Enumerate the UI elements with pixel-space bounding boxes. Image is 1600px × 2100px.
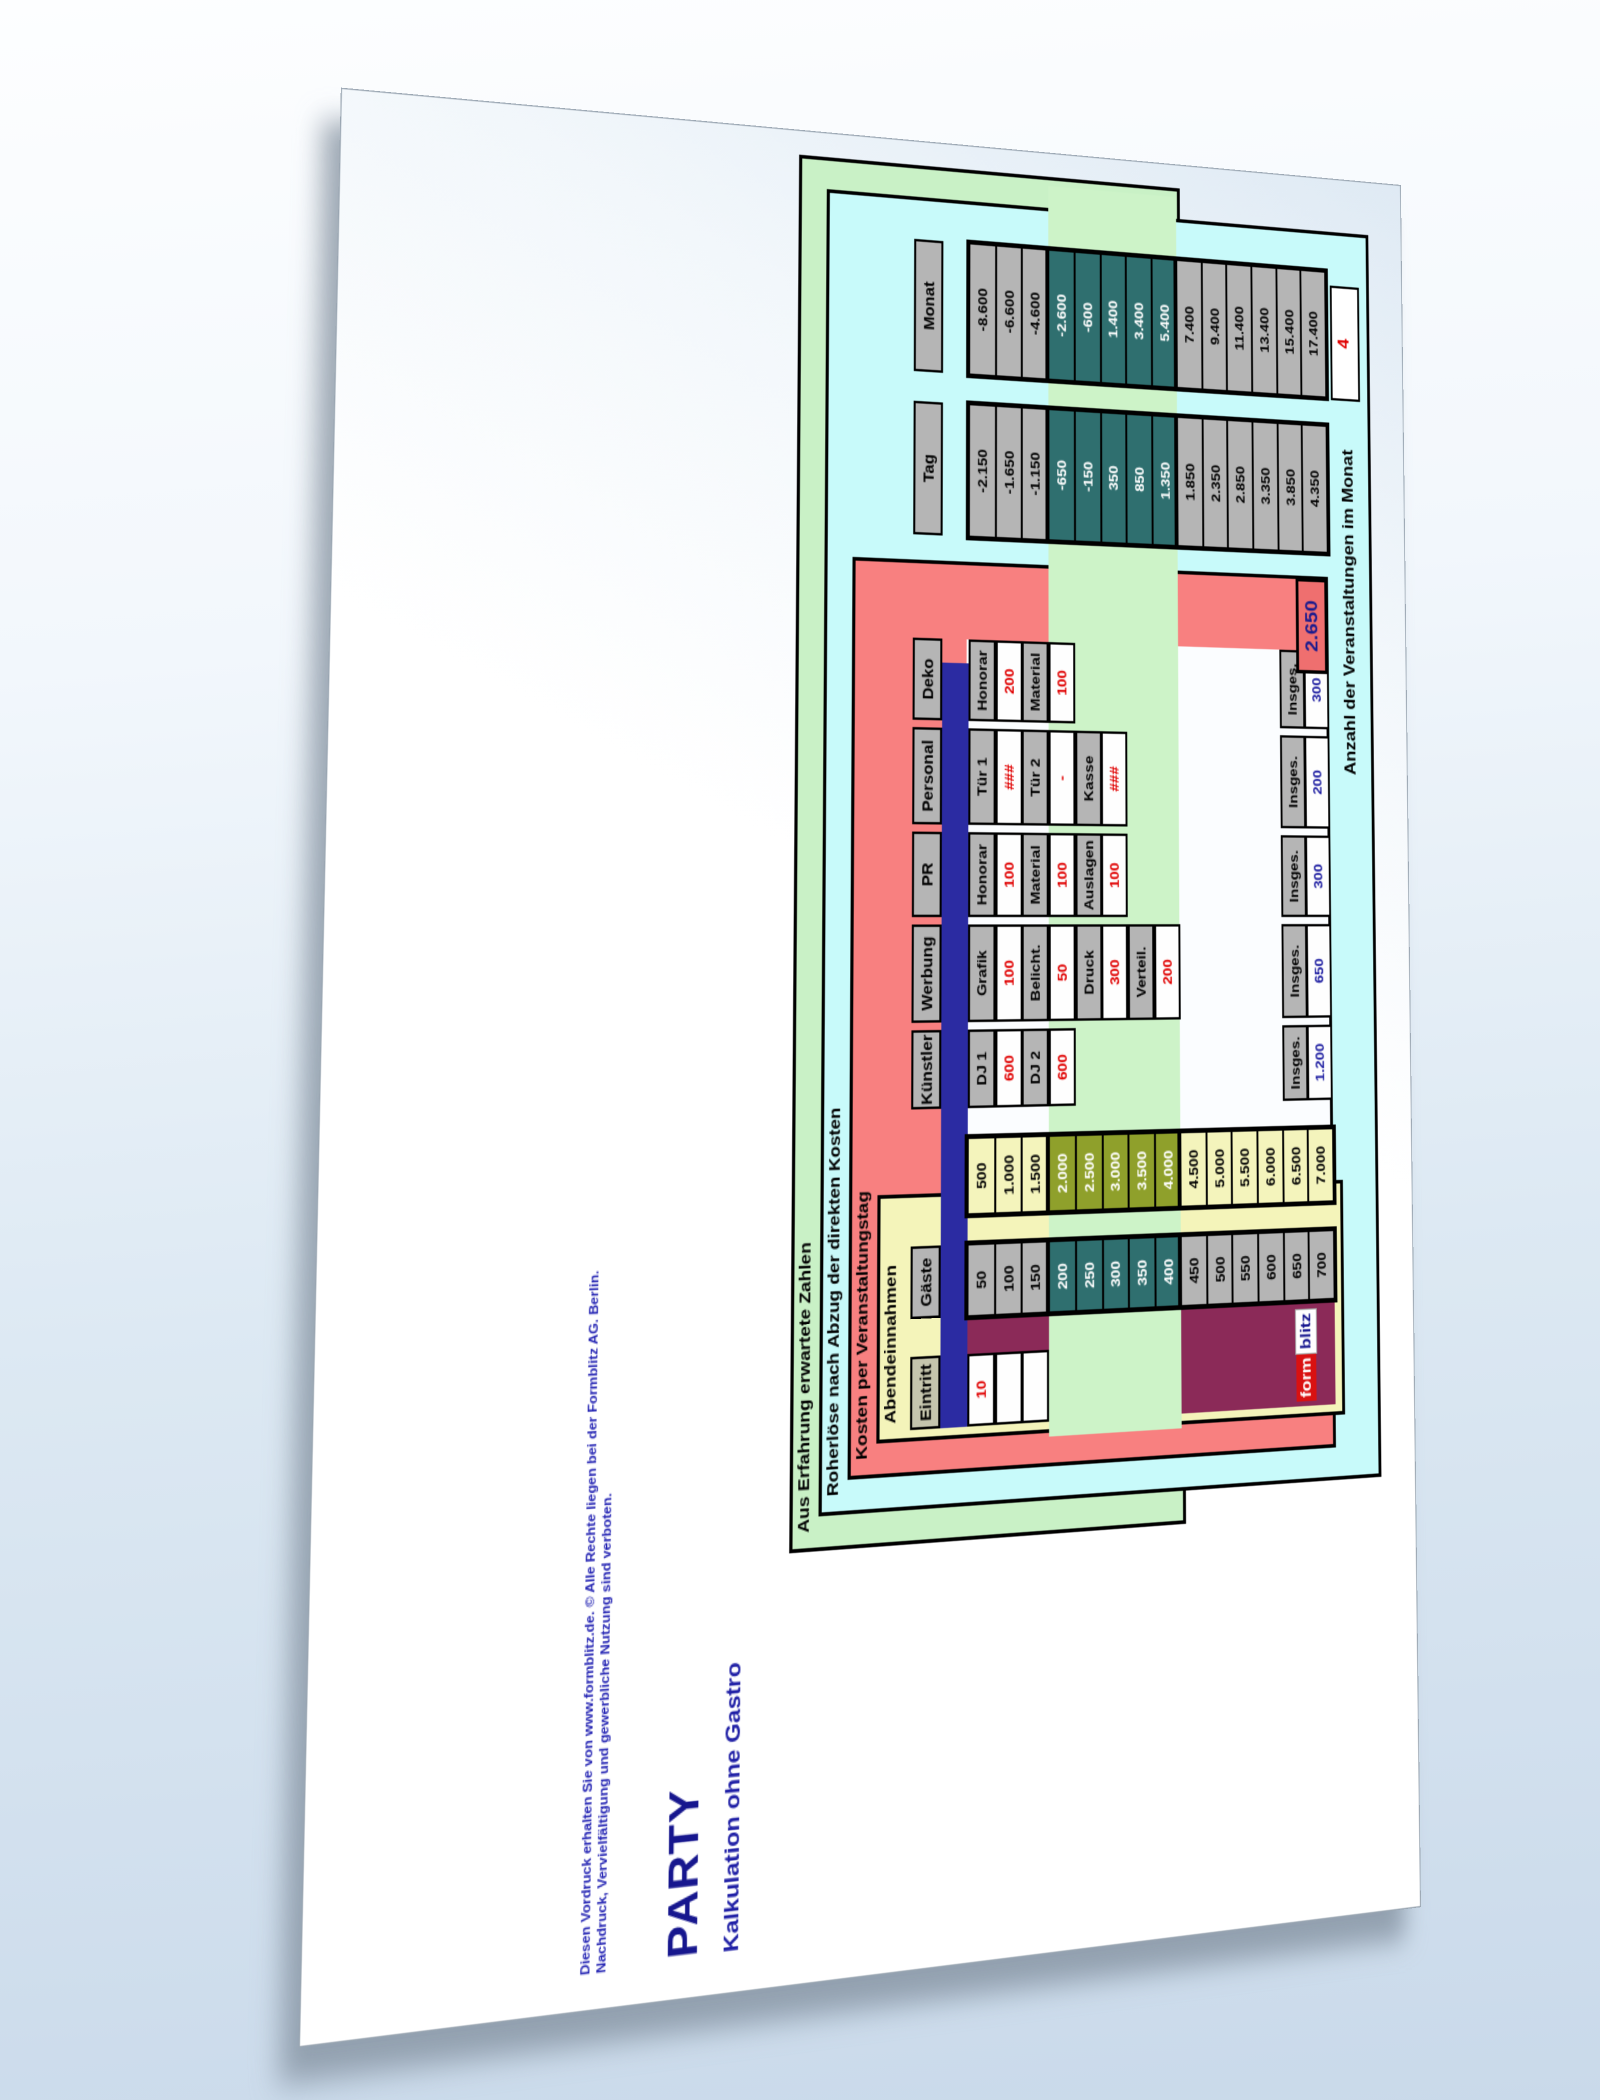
document-page: Diesen Vordruck erhalten Sie von www.for… bbox=[300, 89, 1420, 2046]
einnahmen-col-cell: 3.500 bbox=[1129, 1133, 1156, 1209]
eintritt-value-cell: 10 bbox=[967, 1353, 995, 1427]
cost-value-cell-Deko: 200 bbox=[996, 640, 1023, 722]
cost-value-cell-Werbung: 300 bbox=[1101, 924, 1128, 1020]
einnahmen-col-cell: 5.000 bbox=[1206, 1131, 1232, 1206]
einnahmen-col-cell: 2.000 bbox=[1049, 1135, 1076, 1212]
cost-label-cell-Deko: Honorar bbox=[969, 639, 996, 721]
insges-value-cell-PR: 300 bbox=[1305, 835, 1331, 917]
eintritt-empty-cell bbox=[995, 1351, 1023, 1425]
cost-label-cell-Werbung: Belicht. bbox=[1022, 924, 1049, 1021]
einnahmen-col-cell: 7.000 bbox=[1308, 1128, 1334, 1202]
header-eintritt: Eintritt bbox=[910, 1355, 940, 1430]
monat-col-group-1: -8.600-6.600-4.600 bbox=[966, 239, 1051, 383]
monat-col-cell: 9.400 bbox=[1201, 262, 1227, 391]
tag-col-group-3: 1.8502.3502.8503.3503.8504.350 bbox=[1174, 413, 1330, 556]
monat-col-cell: 11.400 bbox=[1226, 264, 1252, 393]
tag-col-cell: 350 bbox=[1101, 412, 1127, 544]
tag-col-cell: 3.850 bbox=[1277, 423, 1303, 552]
gaeste-col-cell: 100 bbox=[995, 1242, 1022, 1315]
insges-label-cell-Werbung: Insges. bbox=[1281, 924, 1307, 1018]
cost-label-cell-Deko: Material bbox=[1022, 641, 1049, 723]
cost-value-cell-Personal: - bbox=[1049, 730, 1076, 826]
monat-col-cell: 3.400 bbox=[1126, 256, 1152, 387]
einnahmen-col-group-1: 5001.0001.500 bbox=[965, 1132, 1052, 1218]
tag-col-cell: -150 bbox=[1075, 410, 1101, 542]
header-monat: Monat bbox=[914, 239, 944, 373]
cost-label-cell-PR: Material bbox=[1022, 833, 1049, 917]
einnahmen-col-cell: 1.000 bbox=[995, 1136, 1022, 1213]
tag-col-cell: -1.650 bbox=[996, 406, 1023, 539]
cost-value-cell-PR: 100 bbox=[996, 832, 1023, 917]
cost-label-cell-Werbung: Druck bbox=[1076, 924, 1103, 1021]
cost-value-cell-Künstler: 600 bbox=[1049, 1028, 1076, 1106]
cost-label-cell-Personal: Tür 1 bbox=[968, 728, 995, 825]
cost-value-cell-Werbung: 200 bbox=[1154, 924, 1181, 1020]
gaeste-col-cell: 700 bbox=[1309, 1230, 1335, 1300]
monat-col-cell: 13.400 bbox=[1251, 266, 1277, 395]
einnahmen-col-cell: 5.500 bbox=[1232, 1130, 1258, 1205]
monat-col-cell: 17.400 bbox=[1301, 270, 1327, 398]
monat-col-group-3: 7.4009.40011.40013.40015.40017.400 bbox=[1173, 256, 1329, 401]
cost-label-cell-Werbung: Grafik bbox=[968, 924, 996, 1022]
tag-col-cell: 1.850 bbox=[1177, 417, 1203, 548]
background: Diesen Vordruck erhalten Sie von www.for… bbox=[0, 0, 1600, 2100]
cost-label-cell-PR: Auslagen bbox=[1075, 833, 1102, 917]
page-title: PARTY bbox=[660, 1786, 709, 1961]
einnahmen-col-group-2: 2.0002.5003.0003.5004.000 bbox=[1046, 1128, 1185, 1215]
label-erfahrung: Aus Erfahrung erwartete Zahlen bbox=[795, 1242, 815, 1534]
monat-col-cell: 1.400 bbox=[1100, 254, 1126, 385]
cost-value-cell-Werbung: 50 bbox=[1049, 924, 1076, 1021]
tag-col-group-1: -2.150-1.650-1.150 bbox=[966, 400, 1052, 544]
einnahmen-col-cell: 500 bbox=[968, 1137, 995, 1214]
header-werbung: Werbung bbox=[911, 924, 941, 1022]
einnahmen-col-cell: 6.500 bbox=[1283, 1129, 1309, 1203]
gaeste-col-cell: 300 bbox=[1103, 1238, 1130, 1310]
anzahl-value-box: 4 bbox=[1330, 286, 1360, 403]
label-abendeinnahmen: Abendeinnahmen bbox=[882, 1265, 900, 1425]
cost-value-cell-PR: 100 bbox=[1049, 833, 1076, 917]
tag-col-cell: 3.350 bbox=[1252, 421, 1278, 550]
einnahmen-col-cell: 2.500 bbox=[1076, 1134, 1103, 1210]
anzahl-label: Anzahl der Veranstaltungen im Monat bbox=[1335, 449, 1368, 966]
cost-label-cell-Personal: Tür 2 bbox=[1022, 729, 1049, 825]
tag-col-cell: 4.350 bbox=[1302, 424, 1328, 553]
header-kuenstler: Künstler bbox=[911, 1030, 941, 1110]
cost-value-cell-Künstler: 600 bbox=[995, 1029, 1022, 1108]
formblitz-logo: formblitz bbox=[1294, 1308, 1318, 1402]
gaeste-col-cell: 450 bbox=[1181, 1235, 1207, 1306]
cost-value-cell-PR: 100 bbox=[1101, 833, 1128, 917]
insges-label-cell-Künstler: Insges. bbox=[1282, 1025, 1308, 1101]
header-deko: Deko bbox=[913, 638, 943, 721]
gaeste-col-cell: 550 bbox=[1233, 1233, 1259, 1304]
label-kosten: Kosten per Veranstaltungstag bbox=[853, 1191, 872, 1461]
monat-col-cell: -2.600 bbox=[1048, 250, 1074, 382]
einnahmen-col-cell: 6.000 bbox=[1257, 1129, 1283, 1204]
einnahmen-col-group-3: 4.5005.0005.5006.0006.5007.000 bbox=[1177, 1124, 1336, 1210]
cost-value-cell-Werbung: 100 bbox=[995, 924, 1022, 1021]
kosten-total-cell: 2.650 bbox=[1296, 578, 1328, 674]
tag-col-cell: 2.350 bbox=[1202, 418, 1228, 548]
insges-label-cell-Personal: Insges. bbox=[1280, 735, 1306, 828]
cost-value-cell-Personal: ### bbox=[996, 729, 1023, 826]
monat-col-cell: -8.600 bbox=[969, 243, 996, 376]
insges-value-cell-Personal: 200 bbox=[1304, 736, 1330, 829]
cost-label-cell-Personal: Kasse bbox=[1075, 731, 1102, 827]
tag-col-group-2: -650-1503508501.350 bbox=[1045, 405, 1181, 550]
gaeste-col-cell: 200 bbox=[1049, 1240, 1076, 1313]
gaeste-col-cell: 50 bbox=[967, 1243, 994, 1316]
insges-label-cell-PR: Insges. bbox=[1281, 835, 1307, 917]
header-tag: Tag bbox=[913, 401, 943, 536]
cost-value-cell-Deko: 100 bbox=[1049, 642, 1076, 723]
cost-label-cell-Werbung: Verteil. bbox=[1128, 924, 1155, 1020]
insges-value-cell-Künstler: 1.200 bbox=[1307, 1025, 1333, 1101]
monat-col-group-2: -2.600-6001.4003.4005.400 bbox=[1045, 246, 1180, 392]
gaeste-col-group-2: 200250300350400 bbox=[1046, 1232, 1185, 1316]
gaeste-col-cell: 250 bbox=[1076, 1239, 1103, 1311]
header-pr: PR bbox=[912, 832, 942, 918]
header-personal: Personal bbox=[912, 727, 942, 825]
header-gaeste: Gäste bbox=[910, 1245, 940, 1319]
cost-label-cell-Künstler: DJ 2 bbox=[1022, 1028, 1049, 1107]
insges-value-cell-Werbung: 650 bbox=[1306, 924, 1332, 1018]
logo-form: form bbox=[1296, 1353, 1316, 1401]
logo-blitz: blitz bbox=[1294, 1308, 1316, 1355]
copyright-text: Diesen Vordruck erhalten Sie von www.for… bbox=[578, 1270, 619, 1976]
gaeste-col-cell: 350 bbox=[1129, 1237, 1156, 1309]
einnahmen-col-cell: 4.500 bbox=[1180, 1131, 1206, 1206]
cost-value-cell-Personal: ### bbox=[1101, 731, 1128, 826]
cost-label-cell-PR: Honorar bbox=[968, 832, 995, 917]
cost-label-cell-Künstler: DJ 1 bbox=[968, 1029, 996, 1108]
monat-col-cell: 15.400 bbox=[1276, 268, 1302, 396]
gaeste-col-cell: 500 bbox=[1207, 1234, 1233, 1305]
einnahmen-col-cell: 3.000 bbox=[1102, 1134, 1129, 1210]
tag-col-cell: 2.850 bbox=[1227, 420, 1253, 550]
monat-col-cell: -600 bbox=[1074, 252, 1100, 383]
label-roherloese: Roherlöse nach Abzug der direkten Kosten bbox=[824, 1107, 844, 1497]
monat-col-cell: 7.400 bbox=[1176, 260, 1202, 390]
monat-col-cell: -6.600 bbox=[996, 245, 1022, 378]
tag-col-cell: -650 bbox=[1048, 409, 1074, 542]
gaeste-col-cell: 650 bbox=[1284, 1231, 1310, 1301]
gaeste-col-group-1: 50100150 bbox=[964, 1237, 1052, 1320]
eintritt-empty-cell bbox=[1022, 1350, 1049, 1424]
tag-col-cell: -2.150 bbox=[969, 404, 996, 538]
tag-col-cell: 850 bbox=[1127, 414, 1153, 545]
page-subtitle: Kalkulation ohne Gastro bbox=[720, 1661, 747, 1953]
gaeste-col-cell: 600 bbox=[1258, 1232, 1284, 1303]
gaeste-col-group-3: 450500550600650700 bbox=[1178, 1226, 1338, 1310]
